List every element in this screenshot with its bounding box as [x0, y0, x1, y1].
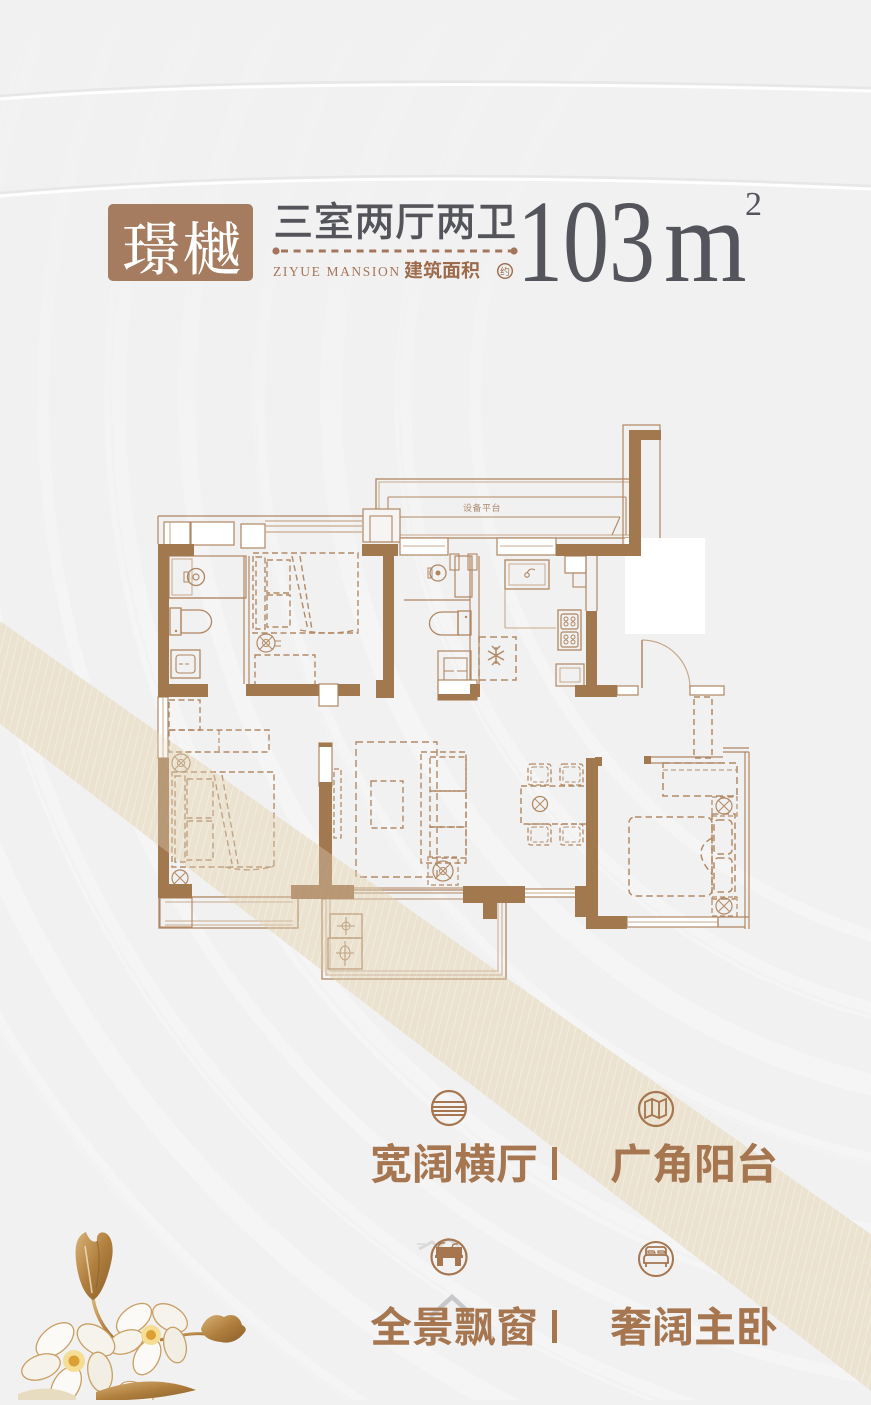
- svg-text:103: 103: [517, 176, 655, 306]
- svg-text:2: 2: [745, 186, 762, 223]
- svg-text:m: m: [664, 177, 747, 307]
- svg-text:ZIYUE MANSION: ZIYUE MANSION: [273, 264, 401, 279]
